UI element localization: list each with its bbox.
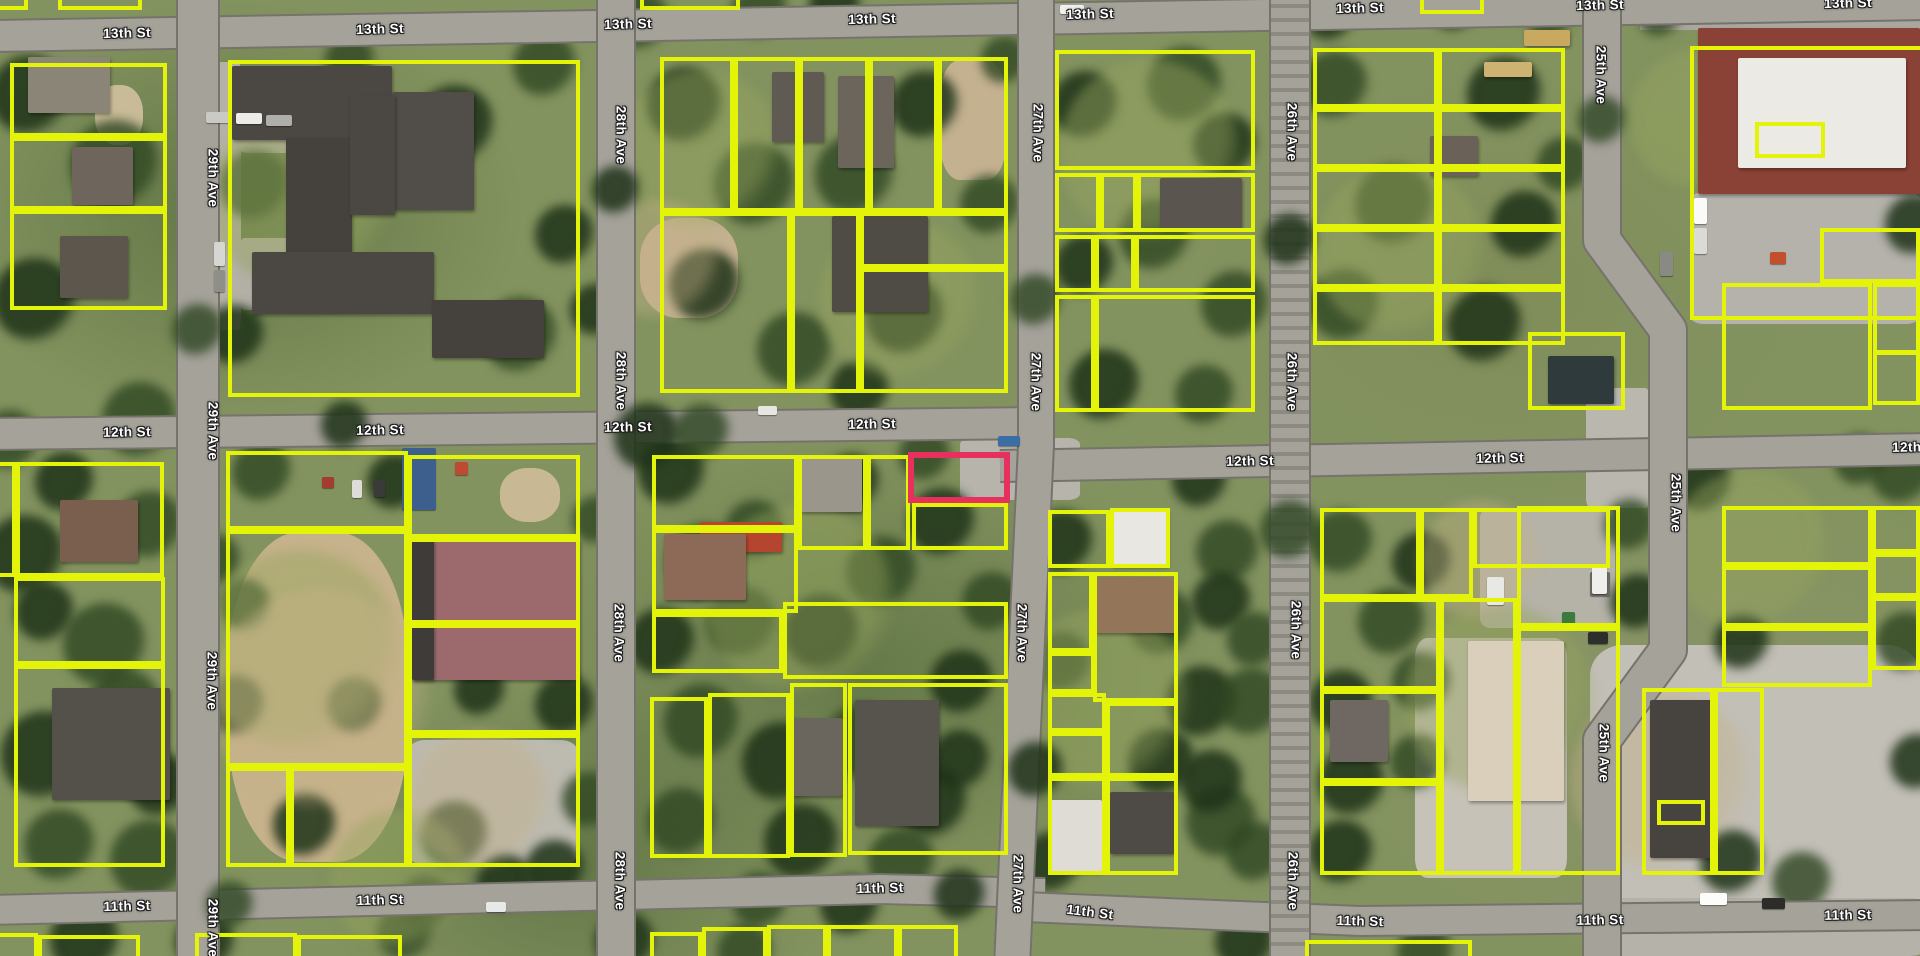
vehicle xyxy=(214,242,225,266)
parcel-boundary[interactable] xyxy=(702,927,767,956)
parcel-boundary[interactable] xyxy=(1313,288,1438,345)
parcel-boundary[interactable] xyxy=(848,683,1008,855)
street-label: 12th St xyxy=(1892,439,1920,455)
parcel-boundary[interactable] xyxy=(734,57,799,212)
parcel-boundary[interactable] xyxy=(1055,173,1100,232)
parcel-boundary[interactable] xyxy=(1320,598,1440,690)
parcel-boundary[interactable] xyxy=(650,932,702,956)
parcel-boundary[interactable] xyxy=(1438,228,1565,288)
parcel-boundary[interactable] xyxy=(1100,173,1137,232)
parcel-boundary[interactable] xyxy=(652,455,798,529)
parcel-boundary[interactable] xyxy=(14,665,165,867)
vehicle xyxy=(486,902,506,912)
road-12th-st-east xyxy=(1000,449,1920,466)
parcel-boundary[interactable] xyxy=(1106,702,1178,777)
street-label: 12th St xyxy=(848,416,896,432)
parcel-boundary[interactable] xyxy=(660,212,791,393)
parcel-boundary[interactable] xyxy=(1657,800,1705,825)
street-label: 29th Ave xyxy=(206,402,221,460)
street-label: 13th St xyxy=(356,21,404,37)
parcel-boundary[interactable] xyxy=(10,210,167,310)
parcel-boundary[interactable] xyxy=(1106,777,1178,875)
street-label: 28th Ave xyxy=(614,352,629,410)
street-label: 12th St xyxy=(604,419,652,435)
street-label: 12th St xyxy=(1476,450,1524,466)
street-label: 27th Ave xyxy=(1011,855,1026,913)
parcel-boundary[interactable] xyxy=(226,530,408,767)
parcel-boundary[interactable] xyxy=(1110,508,1170,568)
parcel-boundary[interactable] xyxy=(1873,283,1920,355)
vehicle xyxy=(1700,893,1727,905)
parcel-boundary[interactable] xyxy=(1095,295,1255,412)
parcel-boundary[interactable] xyxy=(1438,108,1565,168)
parcel-boundary[interactable] xyxy=(58,0,142,10)
parcel-boundary[interactable] xyxy=(408,734,580,867)
parcel-boundary[interactable] xyxy=(1722,566,1872,627)
parcel-boundary[interactable] xyxy=(1440,598,1517,875)
vehicle xyxy=(998,436,1020,446)
street-label: 26th Ave xyxy=(1286,852,1301,910)
parcel-boundary[interactable] xyxy=(10,63,167,137)
street-label: 11th St xyxy=(103,898,150,914)
tree-canopy xyxy=(1260,500,1320,560)
parcel-boundary[interactable] xyxy=(869,57,938,212)
parcel-boundary[interactable] xyxy=(1313,48,1438,108)
parcel-boundary[interactable] xyxy=(640,0,740,10)
vehicle xyxy=(1660,252,1673,276)
parcel-boundary[interactable] xyxy=(0,462,16,577)
parcel-boundary[interactable] xyxy=(783,602,1008,679)
parcel-boundary[interactable] xyxy=(1320,690,1440,782)
parcel-boundary[interactable] xyxy=(1048,732,1106,777)
parcel-boundary[interactable] xyxy=(1048,777,1106,875)
parcel-boundary[interactable] xyxy=(1872,553,1920,597)
parcel-boundary[interactable] xyxy=(1420,508,1473,598)
tree-canopy xyxy=(1264,214,1316,266)
street-label: 13th St xyxy=(1066,6,1114,22)
street-label: 13th St xyxy=(103,25,151,41)
parcel-boundary[interactable] xyxy=(1320,508,1420,598)
street-label: 27th Ave xyxy=(1029,353,1044,411)
tree-canopy xyxy=(674,404,730,460)
street-label: 26th Ave xyxy=(1285,353,1300,411)
parcel-boundary[interactable] xyxy=(860,268,1008,393)
tree-canopy xyxy=(172,304,224,356)
parcel-boundary[interactable] xyxy=(708,693,790,858)
parcel-boundary[interactable] xyxy=(1055,235,1095,292)
parcel-boundary[interactable] xyxy=(1642,688,1714,875)
road-13th-st xyxy=(0,4,1920,36)
street-label: 11th St xyxy=(1824,907,1871,923)
street-label: 12th St xyxy=(356,422,404,438)
parcel-boundary[interactable] xyxy=(14,577,165,665)
street-label: 26th Ave xyxy=(1285,103,1300,161)
parcel-boundary[interactable] xyxy=(912,503,1008,550)
street-label: 13th St xyxy=(1824,0,1872,11)
parcel-boundary[interactable] xyxy=(1820,228,1920,283)
parcel-boundary[interactable] xyxy=(799,57,869,212)
parcel-boundary[interactable] xyxy=(860,212,1008,268)
parcel-boundary[interactable] xyxy=(1055,295,1095,412)
parcel-boundary[interactable] xyxy=(867,455,910,550)
street-label: 29th Ave xyxy=(206,149,221,207)
parcel-boundary[interactable] xyxy=(1048,693,1106,732)
parcel-boundary[interactable] xyxy=(1305,940,1472,956)
parcel-boundary[interactable] xyxy=(1722,283,1872,410)
street-label: 28th Ave xyxy=(613,852,628,910)
parcel-boundary[interactable] xyxy=(1528,332,1625,410)
parcel-boundary[interactable] xyxy=(1313,108,1438,168)
street-label: 13th St xyxy=(604,16,652,32)
street-label: 28th Ave xyxy=(612,604,627,662)
parcel-boundary[interactable] xyxy=(1722,506,1872,566)
street-label: 11th St xyxy=(856,880,903,896)
parcel-boundary[interactable] xyxy=(652,613,783,673)
parcel-boundary[interactable] xyxy=(1320,782,1440,875)
parcel-boundary[interactable] xyxy=(652,529,798,613)
parcel-boundary[interactable] xyxy=(408,538,580,624)
building-footprint xyxy=(1524,30,1570,46)
parcel-boundary[interactable] xyxy=(408,455,580,538)
parcel-boundary[interactable] xyxy=(1873,350,1920,405)
parcel-boundary[interactable] xyxy=(1420,0,1484,14)
parcel-boundary[interactable] xyxy=(1517,506,1620,627)
parcel-boundary[interactable] xyxy=(1722,627,1872,687)
parcel-boundary[interactable] xyxy=(226,767,290,867)
street-label: 25th Ave xyxy=(1597,724,1612,782)
parcel-boundary[interactable] xyxy=(228,60,580,397)
street-label: 11th St xyxy=(1576,912,1623,928)
parcel-boundary[interactable] xyxy=(827,925,898,956)
street-label: 11th St xyxy=(1336,913,1383,929)
parcel-boundary[interactable] xyxy=(408,624,580,734)
tree-canopy xyxy=(592,166,640,214)
vehicle xyxy=(758,406,777,415)
parcel-boundary[interactable] xyxy=(1135,235,1255,292)
vehicle xyxy=(214,270,225,292)
parcel-boundary[interactable] xyxy=(1093,572,1178,702)
street-label: 13th St xyxy=(848,11,896,27)
parcel-boundary[interactable] xyxy=(38,935,140,956)
parcel-boundary[interactable] xyxy=(1048,572,1093,652)
street-label: 12th St xyxy=(103,424,151,440)
map-canvas[interactable]: 13th St13th St13th St13th St13th St13th … xyxy=(0,0,1920,956)
parcel-boundary[interactable] xyxy=(1048,652,1095,693)
parcel-boundary[interactable] xyxy=(297,935,402,956)
street-label: 29th Ave xyxy=(206,899,221,956)
parcel-boundary[interactable] xyxy=(1313,228,1438,288)
tree-canopy xyxy=(934,869,986,921)
parcel-boundary[interactable] xyxy=(767,925,827,956)
parcel-boundary[interactable] xyxy=(790,683,847,857)
parcel-boundary[interactable] xyxy=(650,697,708,858)
street-label: 26th Ave xyxy=(1289,601,1304,659)
parcel-boundary[interactable] xyxy=(938,57,1008,212)
street-label: 27th Ave xyxy=(1015,604,1030,662)
parcel-boundary[interactable] xyxy=(0,0,28,10)
parcel-boundary[interactable] xyxy=(1055,50,1255,170)
street-label: 25th Ave xyxy=(1594,46,1609,104)
street-label: 25th Ave xyxy=(1669,474,1684,532)
parcel-boundary[interactable] xyxy=(1872,597,1920,670)
parcel-boundary[interactable] xyxy=(798,455,867,550)
parcel-boundary[interactable] xyxy=(1438,48,1565,108)
parcel-boundary[interactable] xyxy=(1755,122,1825,158)
parcel-boundary[interactable] xyxy=(1048,510,1110,568)
street-label: 27th Ave xyxy=(1031,104,1046,162)
parcel-boundary[interactable] xyxy=(0,933,38,956)
parcel-boundary[interactable] xyxy=(1313,168,1438,228)
parcel-boundary[interactable] xyxy=(1438,168,1565,228)
parcel-boundary[interactable] xyxy=(10,137,167,210)
parcel-boundary[interactable] xyxy=(1714,688,1764,875)
street-label: 29th Ave xyxy=(205,652,220,710)
street-label: 13th St xyxy=(1576,0,1624,13)
street-label: 12th St xyxy=(1226,453,1274,469)
parcel-boundary[interactable] xyxy=(791,212,860,393)
parcel-boundary[interactable] xyxy=(1872,506,1920,553)
parcel-boundary[interactable] xyxy=(1095,235,1135,292)
parcel-boundary[interactable] xyxy=(1137,173,1255,232)
street-label: 11th St xyxy=(356,892,403,908)
parcel-boundary[interactable] xyxy=(16,462,164,577)
highlighted-parcel[interactable] xyxy=(908,452,1010,503)
street-label: 13th St xyxy=(1336,0,1384,16)
parcel-boundary[interactable] xyxy=(226,451,408,530)
parcel-boundary[interactable] xyxy=(660,57,734,212)
vehicle xyxy=(1762,898,1785,909)
parcel-boundary[interactable] xyxy=(290,767,408,867)
parcel-boundary[interactable] xyxy=(898,925,958,956)
street-label: 28th Ave xyxy=(614,106,629,164)
